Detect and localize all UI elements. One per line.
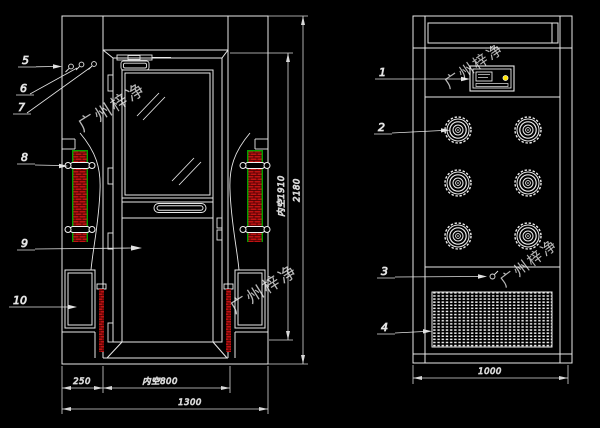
callout-4-label: 4: [381, 321, 388, 334]
indicator-light: [503, 75, 508, 80]
callout-3-label: 3: [381, 265, 388, 278]
air-shower-cad-drawing: 1 2 3 4 5 6 7 8 9 10: [0, 0, 600, 428]
dim-door-clear-width: 内空800: [142, 376, 178, 387]
dim-left-column-width: 250: [73, 377, 91, 387]
side-view: [413, 16, 572, 363]
door-closer: [117, 55, 171, 70]
callout-1-label: 1: [379, 66, 386, 79]
dim-total-height: 2180: [293, 178, 303, 202]
door-latch: [217, 218, 222, 240]
air-nozzle-grid: [445, 117, 541, 249]
mounting-screws: [66, 62, 97, 72]
dim-inner-clear-height: 内空1910: [276, 175, 287, 217]
callout-2-label: 2: [378, 121, 385, 134]
dim-total-width: 1300: [178, 398, 202, 408]
callout-5-label: 5: [22, 54, 29, 67]
callout-10-label: 10: [13, 294, 27, 307]
watermark-front-upper: 广州梓净: [75, 79, 150, 136]
dim-side-depth: 1000: [478, 367, 502, 377]
return-air-grille: [432, 292, 552, 347]
callout-8-label: 8: [21, 151, 28, 164]
hepa-filter-columns: [65, 150, 270, 242]
drawing-canvas: 1 2 3 4 5 6 7 8 9 10: [0, 0, 600, 428]
door-handle: [154, 204, 206, 213]
glass-reflection-marks: [137, 93, 201, 185]
callout-7-label: 7: [18, 101, 25, 114]
callout-6-label: 6: [20, 82, 27, 95]
callout-9-label: 9: [21, 237, 28, 250]
top-cover-band: [428, 23, 558, 43]
